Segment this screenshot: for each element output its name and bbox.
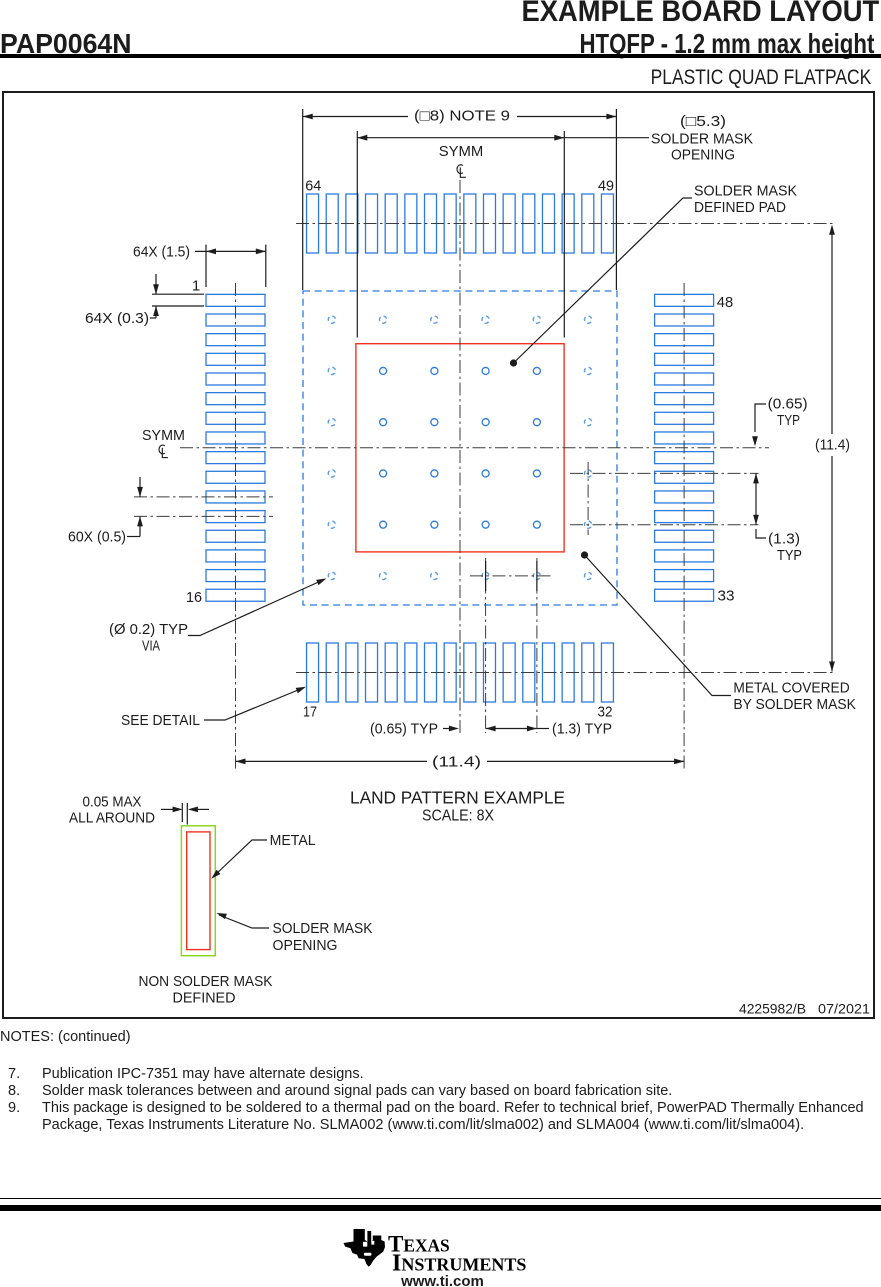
svg-text:07/2021: 07/2021 [818,1001,870,1017]
svg-text:SYMM: SYMM [142,427,185,444]
svg-text:OPENING: OPENING [273,937,338,954]
svg-text:33: 33 [718,588,735,605]
svg-text:SCALE: 8X: SCALE: 8X [422,808,495,825]
svg-text:64X (1.5): 64X (1.5) [133,244,190,261]
svg-text:SEE DETAIL: SEE DETAIL [121,712,200,729]
svg-text:17: 17 [303,704,317,721]
svg-text:DEFINED PAD: DEFINED PAD [694,199,786,216]
svg-text:(1.3) TYP: (1.3) TYP [552,721,612,738]
svg-text:4225982/B: 4225982/B [739,1001,806,1017]
svg-text:(□5.3): (□5.3) [680,113,726,130]
svg-text:32: 32 [598,704,613,721]
svg-text:SOLDER MASK: SOLDER MASK [694,183,797,200]
svg-text:DEFINED: DEFINED [173,989,236,1006]
svg-text:48: 48 [717,294,733,311]
svg-text:64: 64 [305,178,321,195]
svg-text:METAL: METAL [270,832,316,849]
svg-text:(11.4): (11.4) [432,753,481,770]
svg-text:1: 1 [192,278,200,295]
svg-text:SOLDER MASK: SOLDER MASK [273,920,373,937]
svg-text:NON SOLDER MASK: NON SOLDER MASK [139,973,273,990]
svg-text:TYP: TYP [777,412,800,429]
svg-text:VIA: VIA [142,638,160,655]
svg-text:0.05 MAX: 0.05 MAX [83,794,142,811]
svg-text:64X (0.3): 64X (0.3) [85,310,149,327]
svg-text:16: 16 [186,589,202,606]
svg-text:(11.4): (11.4) [815,436,850,453]
svg-text:(Ø 0.2) TYP: (Ø 0.2) TYP [109,621,188,638]
svg-text:LAND PATTERN EXAMPLE: LAND PATTERN EXAMPLE [350,788,565,808]
svg-text:60X (0.5): 60X (0.5) [68,529,126,546]
svg-text:OPENING: OPENING [671,147,735,164]
svg-text:SOLDER MASK: SOLDER MASK [651,130,753,147]
svg-text:METAL COVERED: METAL COVERED [733,680,849,697]
svg-text:TYP: TYP [777,547,802,564]
svg-text:(0.65): (0.65) [768,396,808,413]
svg-text:BY SOLDER MASK: BY SOLDER MASK [733,696,856,713]
svg-text:49: 49 [598,178,614,195]
svg-text:ALL AROUND: ALL AROUND [69,809,155,826]
svg-text:(0.65) TYP: (0.65) TYP [370,721,438,738]
svg-text:(1.3): (1.3) [768,531,800,548]
svg-text:(□8) NOTE 9: (□8) NOTE 9 [414,107,510,124]
svg-text:SYMM: SYMM [439,143,484,160]
